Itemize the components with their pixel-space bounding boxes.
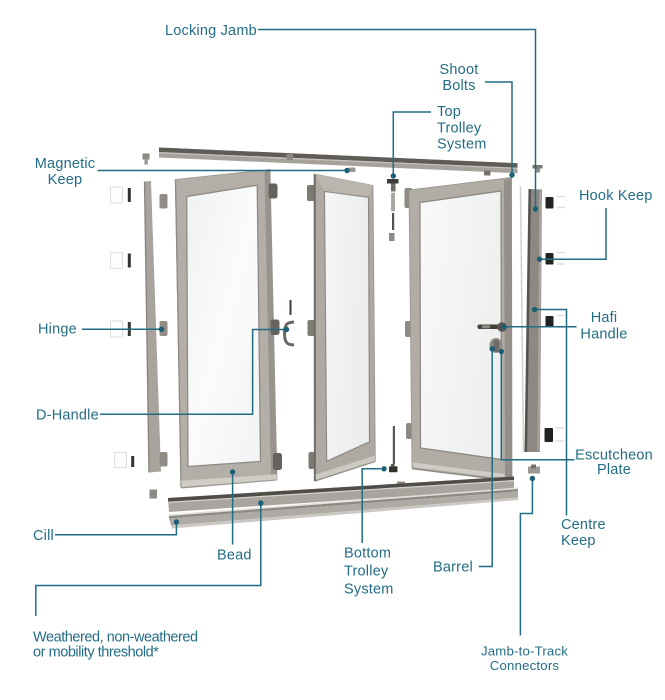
- svg-text:Top: Top: [437, 104, 461, 120]
- svg-text:or mobility threshold*: or mobility threshold*: [33, 645, 159, 661]
- svg-text:Magnetic: Magnetic: [35, 156, 95, 172]
- svg-text:Bolts: Bolts: [442, 78, 475, 94]
- svg-text:Weathered, non-weathered: Weathered, non-weathered: [33, 630, 198, 646]
- svg-text:System: System: [437, 137, 487, 153]
- svg-text:Connectors: Connectors: [490, 658, 560, 673]
- svg-text:Hafi: Hafi: [591, 310, 618, 326]
- svg-text:Jamb-to-Track: Jamb-to-Track: [481, 644, 568, 659]
- svg-text:Bottom: Bottom: [344, 546, 391, 562]
- svg-text:System: System: [344, 582, 394, 598]
- svg-text:Plate: Plate: [597, 462, 631, 478]
- svg-text:Trolley: Trolley: [344, 564, 389, 580]
- svg-text:Cill: Cill: [33, 528, 54, 544]
- svg-text:Centre: Centre: [561, 517, 606, 533]
- svg-text:Trolley: Trolley: [437, 121, 482, 137]
- svg-text:Hinge: Hinge: [38, 322, 77, 338]
- svg-text:Shoot: Shoot: [440, 62, 479, 78]
- svg-text:Barrel: Barrel: [433, 560, 473, 576]
- svg-text:Bead: Bead: [217, 548, 252, 564]
- svg-text:Handle: Handle: [580, 327, 627, 343]
- svg-text:Keep: Keep: [561, 533, 596, 549]
- svg-text:D-Handle: D-Handle: [36, 408, 99, 424]
- svg-text:Keep: Keep: [48, 172, 83, 188]
- svg-text:Hook Keep: Hook Keep: [579, 188, 653, 204]
- svg-text:Locking Jamb: Locking Jamb: [165, 23, 257, 39]
